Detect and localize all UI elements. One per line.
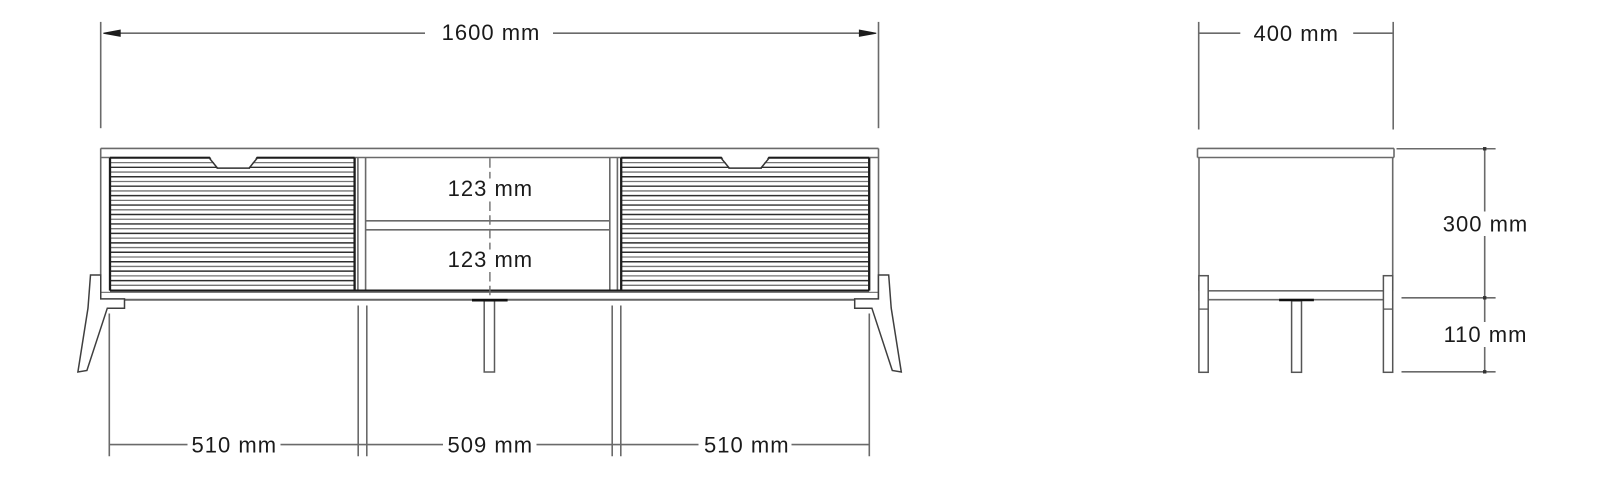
svg-text:510 mm: 510 mm	[704, 432, 789, 457]
svg-text:1600 mm: 1600 mm	[442, 20, 541, 45]
svg-text:400 mm: 400 mm	[1253, 21, 1338, 46]
svg-text:300 mm: 300 mm	[1443, 211, 1528, 236]
svg-text:123 mm: 123 mm	[448, 176, 533, 201]
svg-text:509 mm: 509 mm	[448, 432, 533, 457]
svg-text:123 mm: 123 mm	[448, 247, 533, 272]
svg-text:510 mm: 510 mm	[192, 432, 277, 457]
svg-text:110 mm: 110 mm	[1444, 322, 1528, 347]
